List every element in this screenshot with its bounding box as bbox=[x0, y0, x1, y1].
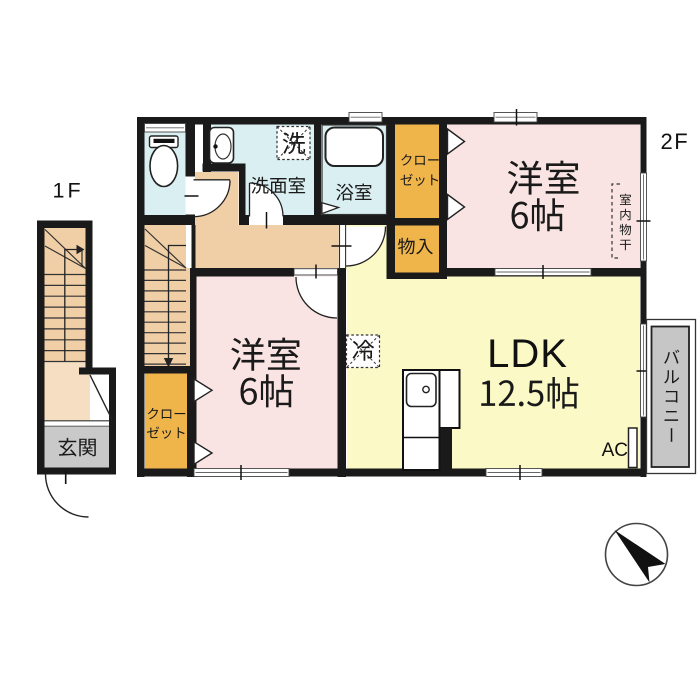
svg-text:LDK: LDK bbox=[487, 332, 568, 376]
svg-text:1F: 1F bbox=[53, 179, 84, 203]
svg-text:2F: 2F bbox=[661, 129, 690, 154]
svg-text:AC: AC bbox=[602, 440, 628, 461]
